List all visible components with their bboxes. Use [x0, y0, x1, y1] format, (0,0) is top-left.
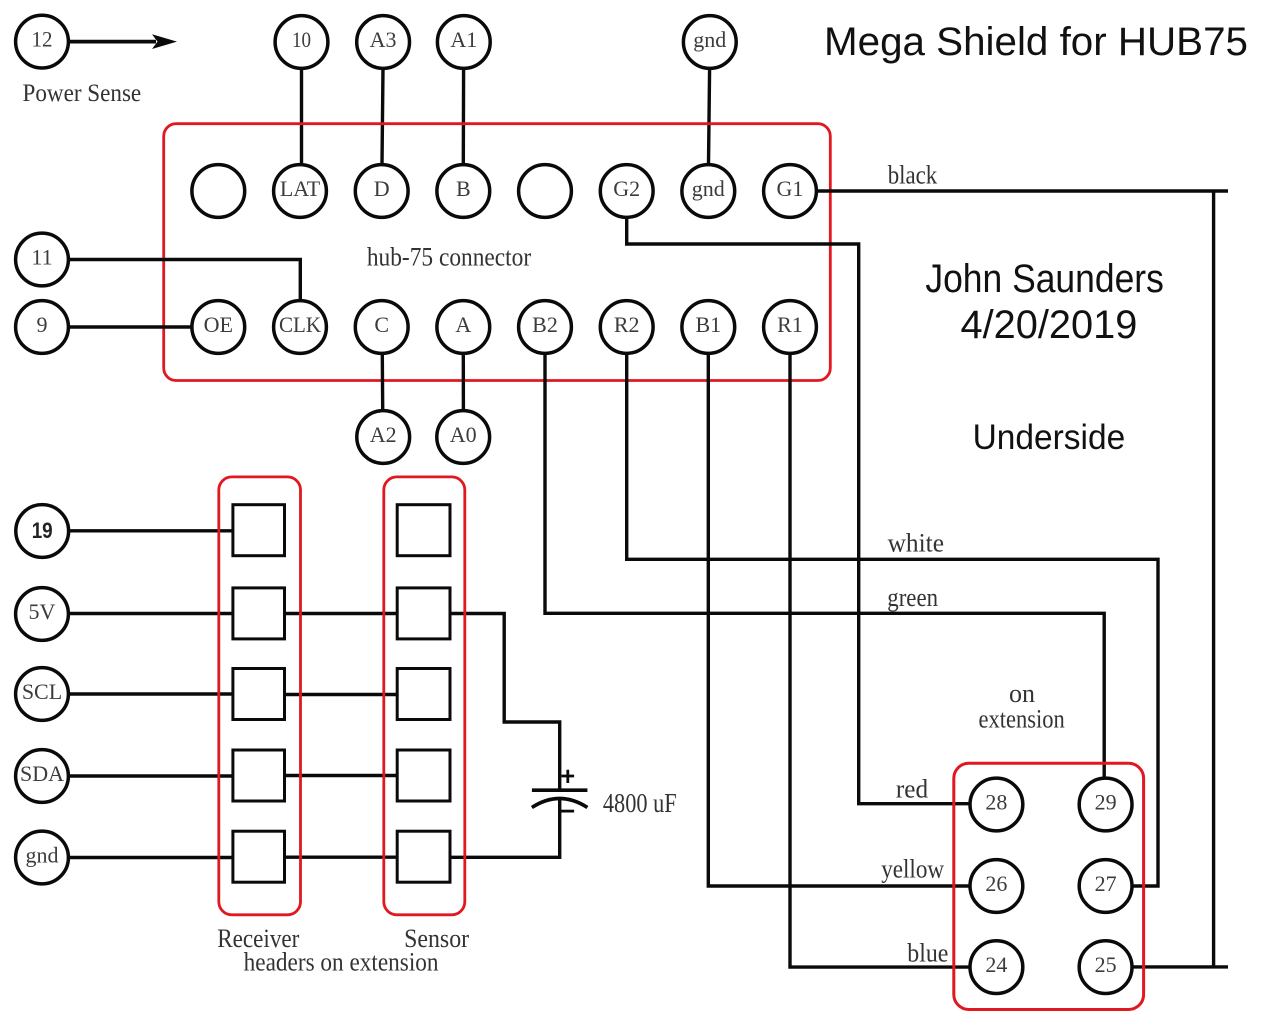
- svg-text:19: 19: [32, 518, 53, 543]
- svg-text:27: 27: [1095, 871, 1117, 896]
- svg-text:gnd: gnd: [26, 843, 59, 868]
- svg-text:CLK: CLK: [279, 312, 321, 337]
- svg-text:headers on extension: headers on extension: [244, 948, 439, 977]
- svg-text:A0: A0: [450, 422, 477, 447]
- svg-text:SDA: SDA: [20, 761, 64, 786]
- svg-text:C: C: [374, 312, 389, 337]
- svg-text:John Saunders: John Saunders: [925, 257, 1164, 301]
- svg-text:28: 28: [985, 790, 1007, 815]
- svg-text:D: D: [374, 176, 390, 201]
- svg-text:11: 11: [31, 245, 52, 270]
- svg-text:25: 25: [1095, 952, 1117, 977]
- svg-text:12: 12: [32, 27, 53, 52]
- svg-text:A: A: [455, 312, 471, 337]
- svg-text:extension: extension: [979, 705, 1065, 734]
- svg-text:SCL: SCL: [22, 679, 62, 704]
- svg-text:R1: R1: [777, 312, 803, 337]
- svg-text:5V: 5V: [29, 599, 56, 624]
- svg-text:white: white: [888, 529, 944, 558]
- svg-text:A1: A1: [450, 27, 477, 52]
- svg-text:black: black: [888, 160, 938, 189]
- svg-text:A3: A3: [370, 27, 397, 52]
- svg-text:green: green: [887, 583, 938, 612]
- svg-text:26: 26: [985, 871, 1007, 896]
- svg-text:OE: OE: [204, 312, 233, 337]
- svg-text:Underside: Underside: [973, 418, 1126, 457]
- svg-text:red: red: [896, 774, 928, 803]
- svg-text:R2: R2: [614, 312, 640, 337]
- svg-text:LAT: LAT: [280, 176, 321, 201]
- svg-text:4/20/2019: 4/20/2019: [961, 303, 1138, 347]
- svg-text:Mega Shield for HUB75: Mega Shield for HUB75: [824, 20, 1248, 64]
- svg-text:B: B: [456, 176, 471, 201]
- svg-text:10: 10: [292, 27, 311, 52]
- svg-text:9: 9: [37, 312, 48, 337]
- svg-text:Power Sense: Power Sense: [23, 80, 142, 107]
- svg-text:G1: G1: [777, 176, 804, 201]
- svg-text:blue: blue: [907, 939, 948, 968]
- svg-text:yellow: yellow: [881, 855, 944, 884]
- svg-text:B1: B1: [695, 312, 721, 337]
- svg-text:gnd: gnd: [692, 176, 725, 201]
- svg-text:29: 29: [1095, 790, 1117, 815]
- svg-text:B2: B2: [532, 312, 558, 337]
- svg-text:G2: G2: [613, 176, 640, 201]
- svg-text:gnd: gnd: [693, 27, 726, 52]
- svg-text:hub-75 connector: hub-75 connector: [367, 243, 532, 272]
- svg-text:A2: A2: [370, 422, 397, 447]
- svg-text:24: 24: [985, 952, 1007, 977]
- svg-text:4800 uF: 4800 uF: [603, 788, 677, 818]
